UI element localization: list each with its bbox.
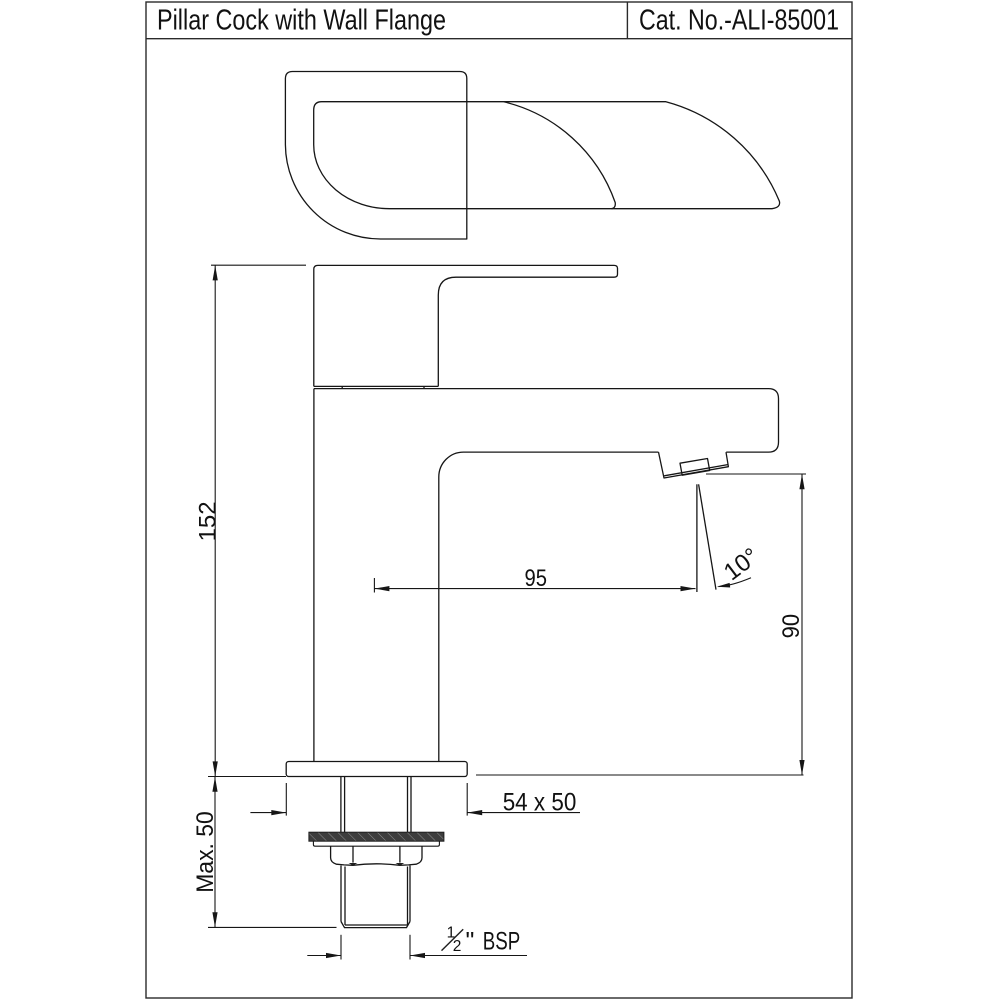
svg-text:95: 95 [525,565,548,592]
svg-text:152: 152 [195,501,222,541]
svg-text:Cat. No.-ALI-85001: Cat. No.-ALI-85001 [639,5,839,37]
svg-text:BSP: BSP [483,927,521,955]
svg-text:90: 90 [778,614,805,639]
svg-text:54 x 50: 54 x 50 [503,788,577,816]
svg-text:Max. 50: Max. 50 [192,811,219,893]
svg-text:": " [466,927,475,955]
svg-text:2: 2 [453,938,462,955]
svg-text:Pillar Cock with Wall Flange: Pillar Cock with Wall Flange [157,5,446,37]
